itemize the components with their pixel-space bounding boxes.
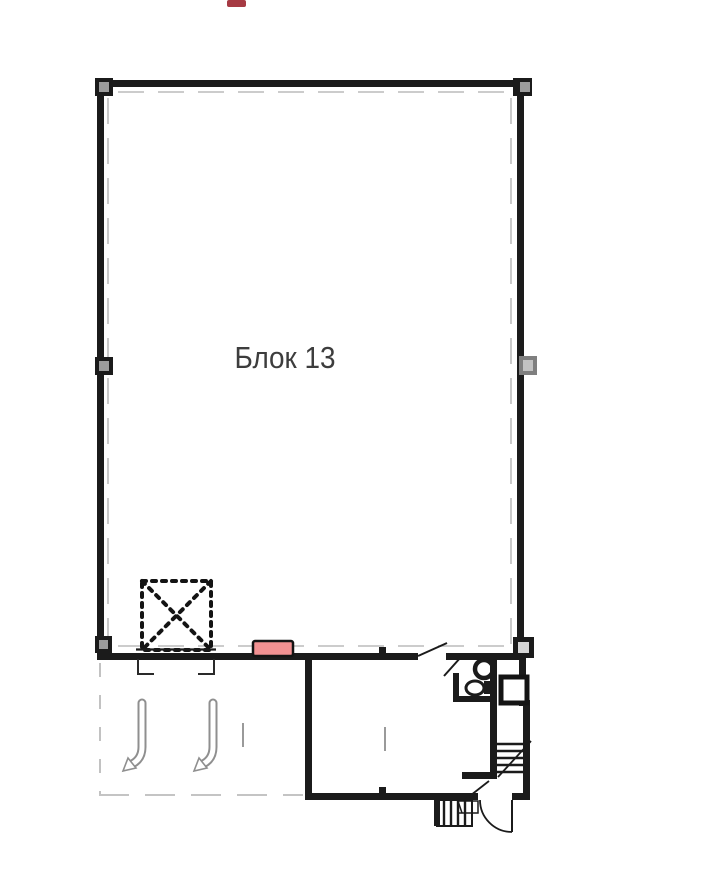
column-bottom-left [95,636,112,653]
column-bottom-right [513,637,534,658]
column-mid-right [519,356,537,375]
staircase [466,741,531,799]
block-label: Блок 13 [234,341,335,376]
column-mid-left [95,357,113,375]
highlight-element [253,641,293,656]
hook-symbol [194,703,213,771]
shaft-hatched-square [142,581,211,650]
hook-symbol [123,703,142,771]
wc-fixtures [466,660,493,695]
floor-plan-svg: Блок 13 [0,0,726,875]
opening-brackets [138,659,214,674]
column-top-left [95,78,113,96]
top-red-mark [227,0,246,7]
duct-shaft-box [501,677,527,703]
column-top-right [513,78,532,96]
toilet-symbol [466,681,484,695]
floor-plan-page: Блок 13 [0,0,726,875]
parking-area [99,663,303,795]
annex-walls [305,647,530,800]
